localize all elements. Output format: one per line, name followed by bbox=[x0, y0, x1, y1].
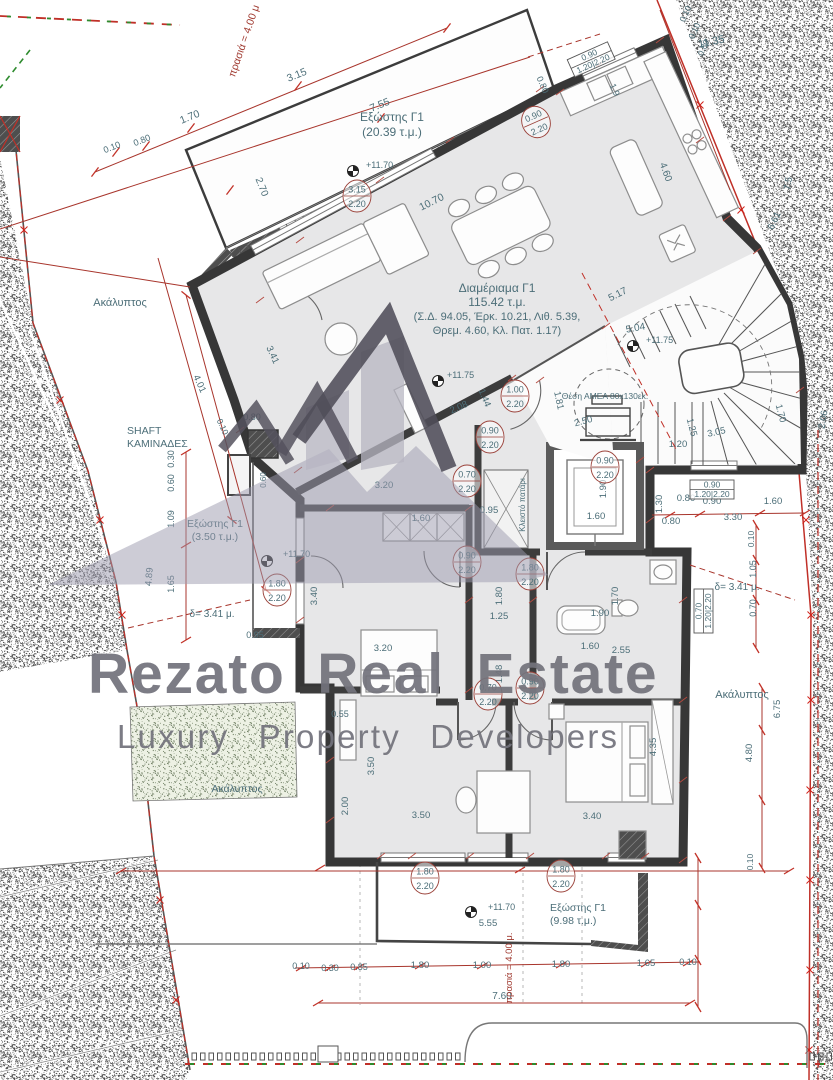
svg-text:3.15: 3.15 bbox=[285, 66, 309, 85]
svg-text:1.00: 1.00 bbox=[473, 960, 492, 971]
svg-text:2.20: 2.20 bbox=[416, 881, 434, 891]
svg-text:(9.98 τ.μ.): (9.98 τ.μ.) bbox=[550, 915, 596, 927]
svg-text:+11.75: +11.75 bbox=[646, 335, 673, 345]
svg-text:1.00: 1.00 bbox=[506, 385, 524, 395]
svg-text:0.70: 0.70 bbox=[748, 599, 758, 617]
svg-text:3.15: 3.15 bbox=[348, 185, 366, 195]
svg-text:0.10: 0.10 bbox=[746, 530, 756, 547]
svg-text:0.60: 0.60 bbox=[166, 474, 176, 492]
svg-text:1.80: 1.80 bbox=[552, 959, 571, 970]
svg-text:0.90: 0.90 bbox=[481, 426, 499, 436]
svg-text:0.85: 0.85 bbox=[350, 962, 368, 972]
svg-text:3.30: 3.30 bbox=[724, 512, 743, 523]
svg-text:5.55: 5.55 bbox=[479, 918, 498, 929]
svg-text:Ακάλυπτος: Ακάλυπτος bbox=[715, 689, 769, 701]
svg-text:0.90: 0.90 bbox=[596, 456, 614, 466]
svg-text:πρασιά = 4.00 μ.: πρασιά = 4.00 μ. bbox=[504, 933, 515, 1004]
svg-text:1.70: 1.70 bbox=[610, 587, 621, 606]
svg-text:1.80: 1.80 bbox=[552, 865, 570, 875]
svg-text:1.65: 1.65 bbox=[637, 958, 656, 969]
svg-text:(20.39 τ.μ.): (20.39 τ.μ.) bbox=[362, 125, 422, 139]
svg-text:1.20: 1.20 bbox=[669, 439, 688, 450]
svg-text:2.20: 2.20 bbox=[552, 879, 570, 889]
svg-text:δ= 3.41 μ.: δ= 3.41 μ. bbox=[190, 609, 235, 620]
svg-text:1.30: 1.30 bbox=[654, 495, 665, 514]
svg-text:Διαμέριαμα Γ1: Διαμέριαμα Γ1 bbox=[459, 281, 536, 295]
svg-text:1.90: 1.90 bbox=[591, 608, 610, 619]
svg-text:2.20: 2.20 bbox=[268, 593, 286, 603]
svg-text:SHAFT: SHAFT bbox=[127, 425, 162, 437]
svg-text:4.01: 4.01 bbox=[190, 373, 208, 394]
svg-text:115.42 τ.μ.: 115.42 τ.μ. bbox=[468, 295, 525, 309]
svg-text:0.80: 0.80 bbox=[132, 132, 152, 148]
svg-text:3.50: 3.50 bbox=[366, 757, 377, 776]
svg-text:1.25: 1.25 bbox=[490, 611, 509, 622]
svg-text:1.05: 1.05 bbox=[748, 560, 758, 578]
svg-text:3.50: 3.50 bbox=[412, 810, 431, 821]
svg-text:1.20|2.20: 1.20|2.20 bbox=[694, 489, 730, 499]
svg-text:1.80: 1.80 bbox=[494, 587, 505, 606]
svg-text:2.00: 2.00 bbox=[340, 797, 351, 816]
svg-text:2.20: 2.20 bbox=[481, 440, 499, 450]
svg-text:ΚΑΜΙΝΑΔΕΣ: ΚΑΜΙΝΑΔΕΣ bbox=[127, 438, 188, 450]
svg-text:3.40: 3.40 bbox=[309, 587, 320, 606]
svg-text:1.60: 1.60 bbox=[587, 511, 606, 522]
svg-text:0.70: 0.70 bbox=[458, 470, 476, 480]
svg-text:Rezato Real Estate: Rezato Real Estate bbox=[88, 642, 658, 706]
svg-text:0.10: 0.10 bbox=[679, 957, 697, 967]
svg-text:1.80: 1.80 bbox=[416, 867, 434, 877]
svg-text:4.80: 4.80 bbox=[744, 744, 755, 763]
svg-text:Κλειστό πατάρι: Κλειστό πατάρι bbox=[518, 478, 527, 532]
svg-text:Θέση ΑΜΕΑ 80x130εκ.: Θέση ΑΜΕΑ 80x130εκ. bbox=[562, 391, 649, 401]
svg-text:6.75: 6.75 bbox=[772, 700, 783, 719]
svg-text:Εξώστης Γ1: Εξώστης Γ1 bbox=[360, 110, 424, 124]
svg-text:2.20: 2.20 bbox=[506, 399, 524, 409]
svg-text:2.20: 2.20 bbox=[596, 470, 614, 480]
svg-text:+11.70: +11.70 bbox=[366, 160, 393, 170]
svg-text:Luxury Property Developers: Luxury Property Developers bbox=[117, 718, 619, 755]
svg-text:+11.70: +11.70 bbox=[488, 902, 515, 912]
svg-text:Ακάλυπτος: Ακάλυπτος bbox=[93, 297, 147, 309]
svg-text:δ= 3.41 μ.: δ= 3.41 μ. bbox=[715, 582, 760, 593]
svg-text:0.30: 0.30 bbox=[166, 450, 176, 468]
svg-text:1.70: 1.70 bbox=[178, 108, 202, 127]
svg-text:7.5: 7.5 bbox=[782, 176, 795, 191]
svg-text:2.20: 2.20 bbox=[348, 199, 366, 209]
svg-text:1.80: 1.80 bbox=[411, 960, 430, 971]
svg-text:0.10: 0.10 bbox=[292, 961, 310, 971]
svg-text:3.40: 3.40 bbox=[583, 811, 602, 822]
svg-text:1.60: 1.60 bbox=[764, 496, 783, 507]
svg-text:0.95: 0.95 bbox=[246, 630, 264, 640]
svg-text:(Σ.Δ. 94.05, Έρκ. 10.21, Λιθ.: (Σ.Δ. 94.05, Έρκ. 10.21, Λιθ. 5.39, bbox=[414, 311, 581, 323]
svg-text:1.20|2.20: 1.20|2.20 bbox=[703, 593, 713, 629]
svg-text:0.10: 0.10 bbox=[745, 853, 755, 870]
svg-text:0.70: 0.70 bbox=[694, 602, 704, 619]
svg-text:4.35: 4.35 bbox=[648, 738, 659, 757]
svg-text:0.10: 0.10 bbox=[102, 139, 122, 155]
svg-text:+11.75: +11.75 bbox=[447, 370, 474, 380]
svg-text:0.90: 0.90 bbox=[704, 480, 721, 490]
svg-text:0.80: 0.80 bbox=[662, 516, 681, 527]
svg-text:Ακάλυπτος: Ακάλυπτος bbox=[211, 783, 262, 795]
svg-text:Εξώστης Γ1: Εξώστης Γ1 bbox=[550, 902, 606, 914]
svg-text:πρασιά = 4.00 μ: πρασιά = 4.00 μ bbox=[226, 3, 262, 78]
svg-text:0.30: 0.30 bbox=[321, 963, 339, 973]
svg-text:Θρεμ. 4.60, Κλ. Πατ. 1.17): Θρεμ. 4.60, Κλ. Πατ. 1.17) bbox=[433, 325, 561, 337]
